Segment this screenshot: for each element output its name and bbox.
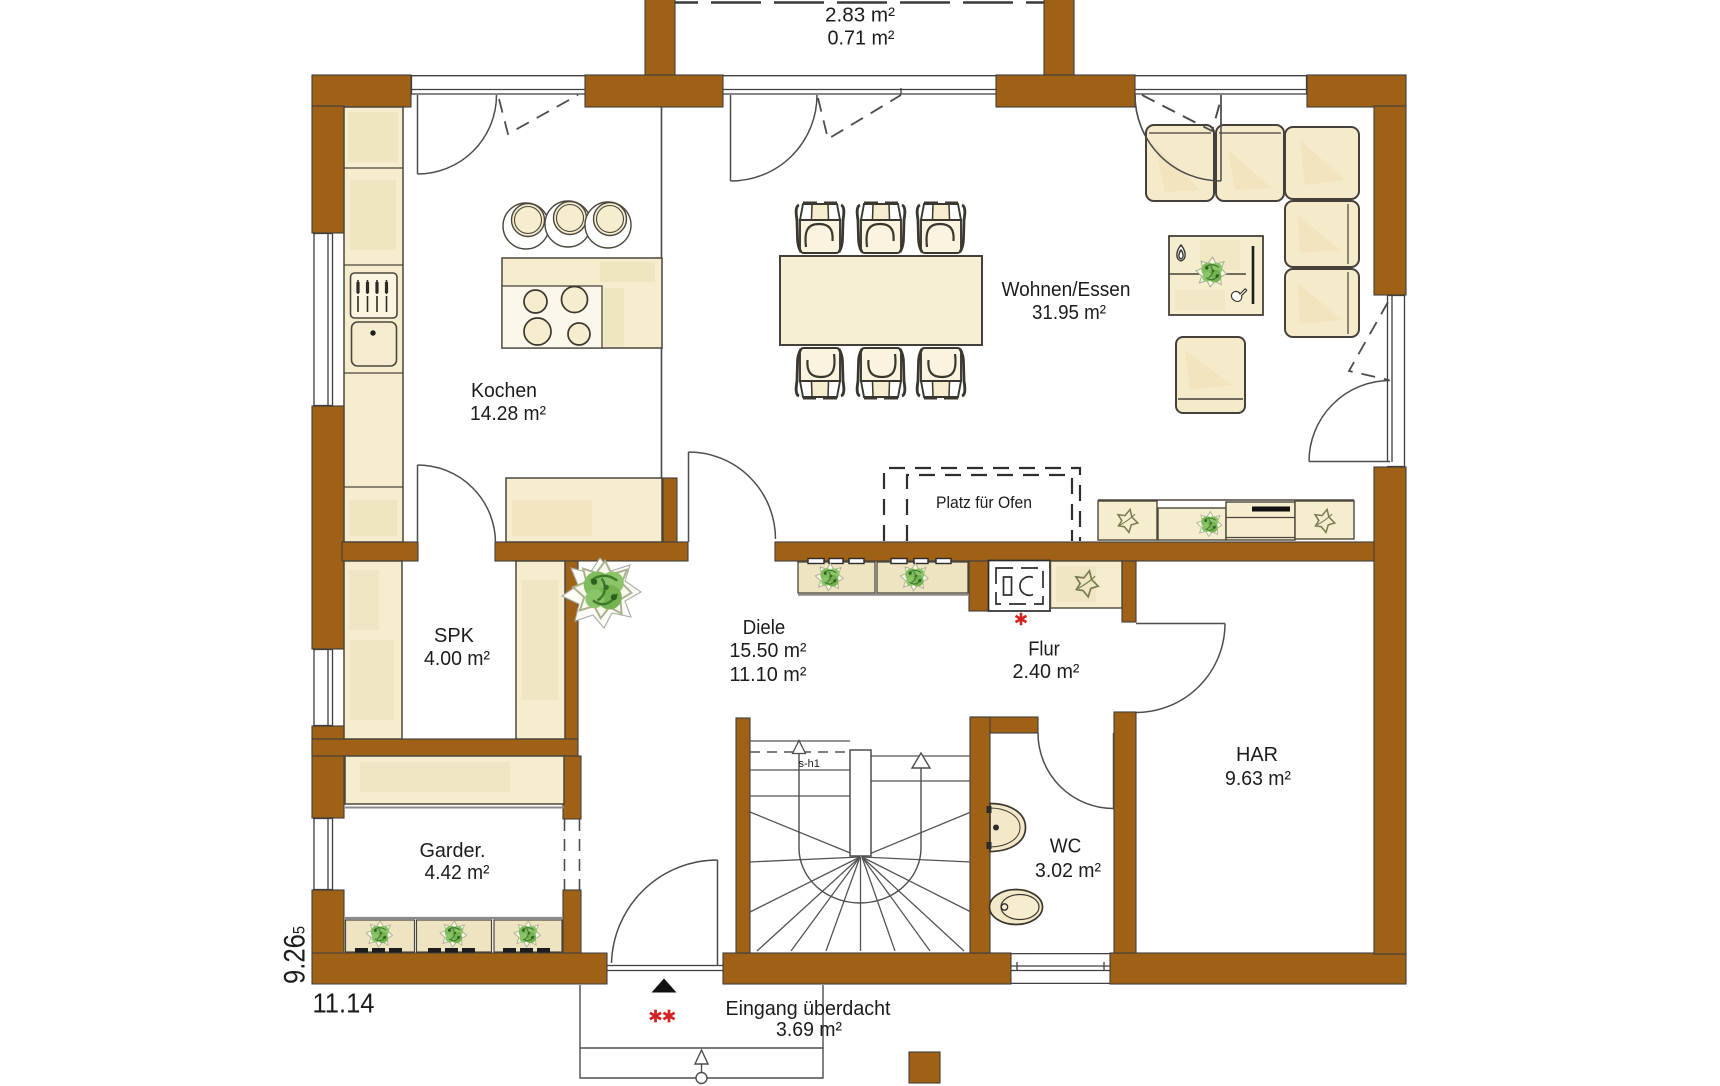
svg-text:Kochen: Kochen xyxy=(471,379,537,402)
svg-text:2.40 m²: 2.40 m² xyxy=(1013,660,1080,683)
svg-text:Wohnen/Essen: Wohnen/Essen xyxy=(1002,278,1131,301)
svg-text:9.265: 9.265 xyxy=(279,926,312,984)
svg-text:WC: WC xyxy=(1050,835,1082,858)
svg-text:11.10 m²: 11.10 m² xyxy=(730,663,807,686)
svg-text:Platz für Ofen: Platz für Ofen xyxy=(936,493,1032,512)
svg-text:9.63 m²: 9.63 m² xyxy=(1225,767,1291,790)
svg-text:4.00 m²: 4.00 m² xyxy=(424,647,490,670)
svg-text:31.95 m²: 31.95 m² xyxy=(1032,301,1106,324)
svg-text:2.83 m²: 2.83 m² xyxy=(825,4,895,27)
svg-text:s-h1: s-h1 xyxy=(799,758,820,770)
svg-text:Diele: Diele xyxy=(743,616,786,639)
svg-text:Flur: Flur xyxy=(1028,638,1060,661)
svg-text:3.02 m²: 3.02 m² xyxy=(1035,859,1101,882)
svg-text:14.28 m²: 14.28 m² xyxy=(470,402,546,425)
svg-text:0.71 m²: 0.71 m² xyxy=(828,27,895,50)
svg-text:4.42 m²: 4.42 m² xyxy=(425,861,490,884)
svg-text:Garder.: Garder. xyxy=(420,839,486,862)
svg-text:15.50 m²: 15.50 m² xyxy=(730,639,807,662)
svg-text:Eingang überdacht: Eingang überdacht xyxy=(726,997,891,1020)
svg-text:3.69 m²: 3.69 m² xyxy=(776,1018,842,1041)
svg-text:SPK: SPK xyxy=(434,624,474,647)
svg-text:HAR: HAR xyxy=(1236,743,1278,766)
svg-text:11.14: 11.14 xyxy=(313,988,375,1019)
